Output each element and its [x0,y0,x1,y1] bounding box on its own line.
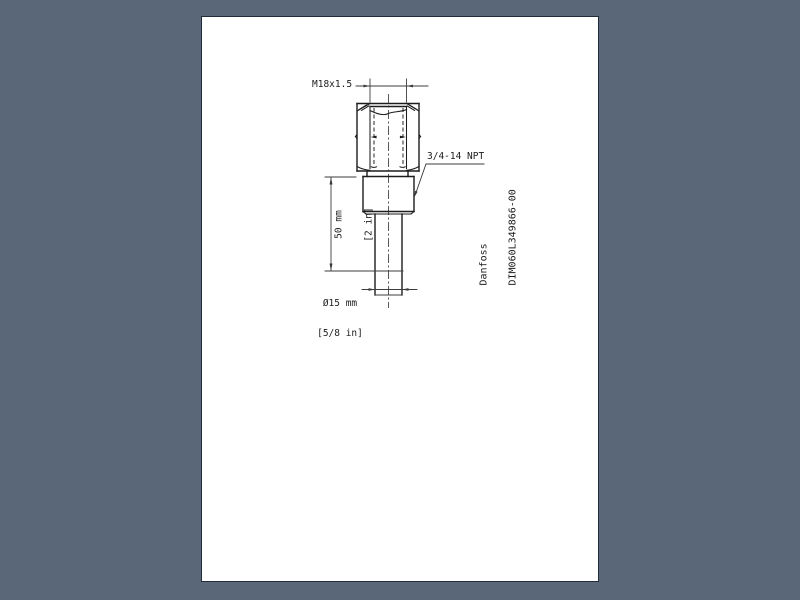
dim-label-length: 50 mm [2 in] [315,205,336,245]
dim-label-length-in: [2 in] [365,205,375,245]
hex-body-outline [355,104,420,172]
dim-label-diameter-in: [5/8 in] [316,329,364,339]
viewer-canvas: { "colors": { "background": "#5a6779", "… [0,0,800,600]
dim-label-top-thread: M18x1.5 [312,80,352,90]
document-id-label: DIM060L349866-00 [508,186,518,286]
dim-label-diameter: Ø15 mm [5/8 in] [316,279,364,349]
dim-top-thread-lines [356,79,428,102]
manufacturer-label: Danfoss [480,186,490,286]
technical-drawing-svg [0,0,800,600]
dim-label-length-mm: 50 mm [335,205,345,245]
dim-label-diameter-mm: Ø15 mm [316,299,364,309]
drawing-id-label: Danfoss DIM060L349866-00 [461,186,480,286]
dim-diameter-lines [362,288,417,291]
dim-label-npt: 3/4-14 NPT [427,152,484,162]
